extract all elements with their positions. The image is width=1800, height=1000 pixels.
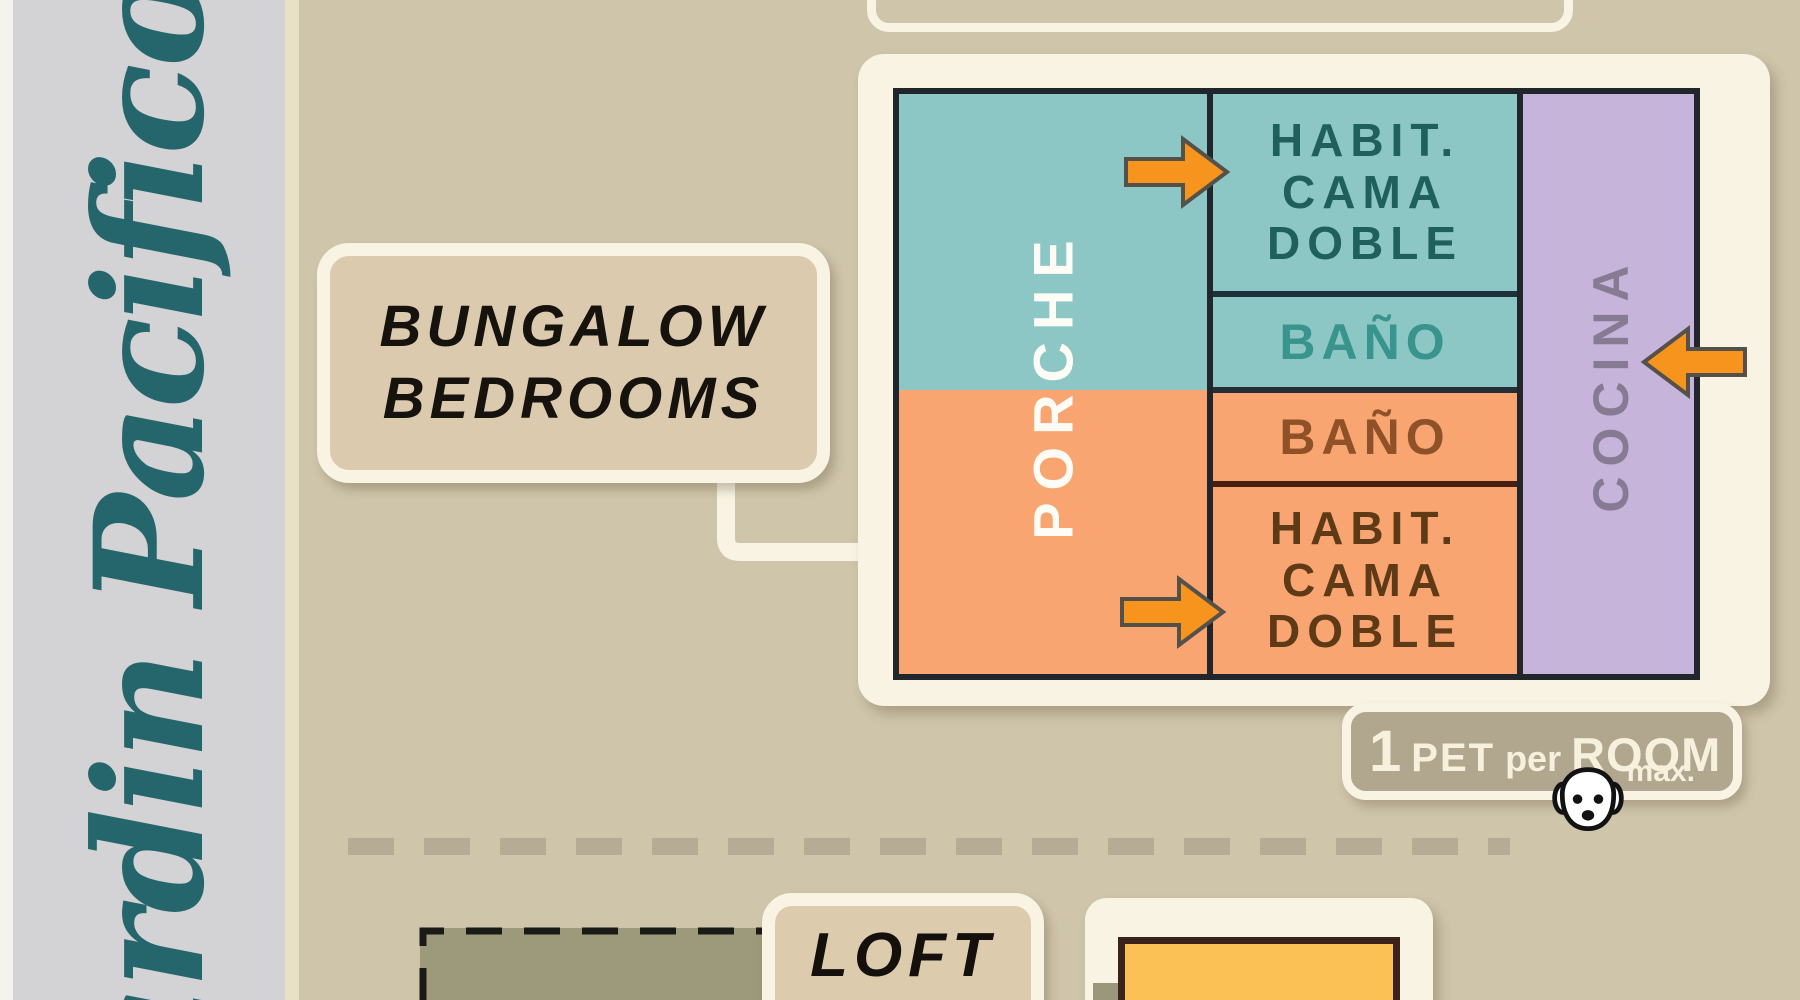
olive-sliver — [1093, 983, 1119, 1000]
top-cutoff-panel — [867, 0, 1573, 32]
room-bano-orange: BAÑO — [1213, 393, 1517, 481]
sidebar-edge-strip — [285, 0, 299, 1000]
porche-label: PORCHE — [1021, 228, 1086, 540]
loft-label: LOFT — [810, 920, 996, 1000]
sidebar-left-strip — [0, 0, 13, 1000]
loft-callout: LOFT — [762, 893, 1044, 1000]
loft-floorplan-panel — [1085, 898, 1433, 1000]
resort-map-canvas: Jardin Pacifico BUNGALOW BEDROOMS PORCHE… — [0, 0, 1800, 1000]
room-bano-teal: BAÑO — [1213, 297, 1517, 387]
dashed-trail-divider — [348, 838, 1510, 855]
cocina-label: COCINA — [1582, 255, 1640, 512]
bungalow-bedrooms-label: BUNGALOW BEDROOMS — [380, 291, 768, 435]
pet-policy-max-label: max. — [1627, 755, 1695, 789]
room-habit-cama-doble-bottom: HABIT. CAMA DOBLE — [1213, 487, 1517, 674]
room-habit-cama-doble-top: HABIT. CAMA DOBLE — [1213, 94, 1517, 291]
dog-face-icon — [1548, 762, 1628, 842]
bungalow-bedrooms-callout: BUNGALOW BEDROOMS — [317, 243, 830, 483]
bungalow-floorplan-panel: PORCHE HABIT. CAMA DOBLE BAÑO BAÑO — [858, 54, 1770, 706]
pet-policy-badge: 1 PET per ROOM max. — [1342, 703, 1742, 800]
floorplan: PORCHE HABIT. CAMA DOBLE BAÑO BAÑO — [893, 88, 1700, 680]
site-title: Jardin Pacifico — [62, 0, 238, 1000]
room-yellow — [1118, 937, 1400, 1000]
